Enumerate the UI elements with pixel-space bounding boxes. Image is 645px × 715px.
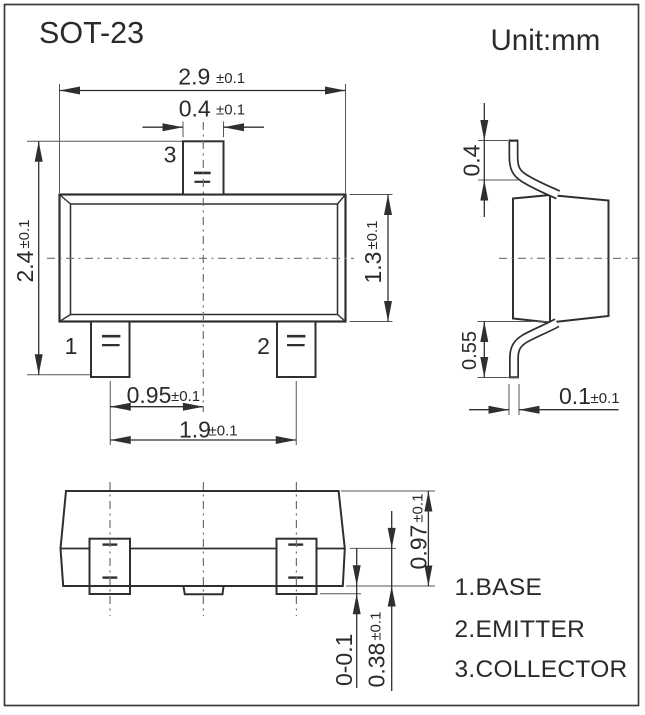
svg-text:±0.1: ±0.1 [591,390,620,407]
svg-text:0.4: 0.4 [459,144,485,176]
svg-text:3: 3 [164,142,177,168]
svg-text:Unit:mm: Unit:mm [491,24,601,57]
svg-text:1.3±0.1: 1.3±0.1 [360,220,386,283]
svg-text:±0.1: ±0.1 [216,102,245,119]
svg-text:±0.1: ±0.1 [171,388,200,405]
svg-text:0.55: 0.55 [459,331,481,370]
svg-text:±0.1: ±0.1 [216,70,245,87]
svg-text:0-0.1: 0-0.1 [331,634,357,686]
svg-text:0.95: 0.95 [127,382,172,408]
svg-text:0.38±0.1: 0.38±0.1 [364,612,390,688]
svg-text:1.BASE: 1.BASE [455,574,543,601]
svg-text:2.4±0.1: 2.4±0.1 [12,219,38,282]
svg-text:±0.1: ±0.1 [209,423,238,440]
svg-text:2.9: 2.9 [178,64,210,90]
svg-text:1: 1 [65,333,78,359]
svg-text:3.COLLECTOR: 3.COLLECTOR [455,656,628,683]
svg-text:2: 2 [257,333,270,359]
svg-text:0.1: 0.1 [559,383,591,409]
svg-text:1.9: 1.9 [179,417,211,443]
svg-text:SOT-23: SOT-23 [39,16,144,50]
svg-text:2.EMITTER: 2.EMITTER [455,616,586,643]
svg-text:0.4: 0.4 [179,95,211,121]
